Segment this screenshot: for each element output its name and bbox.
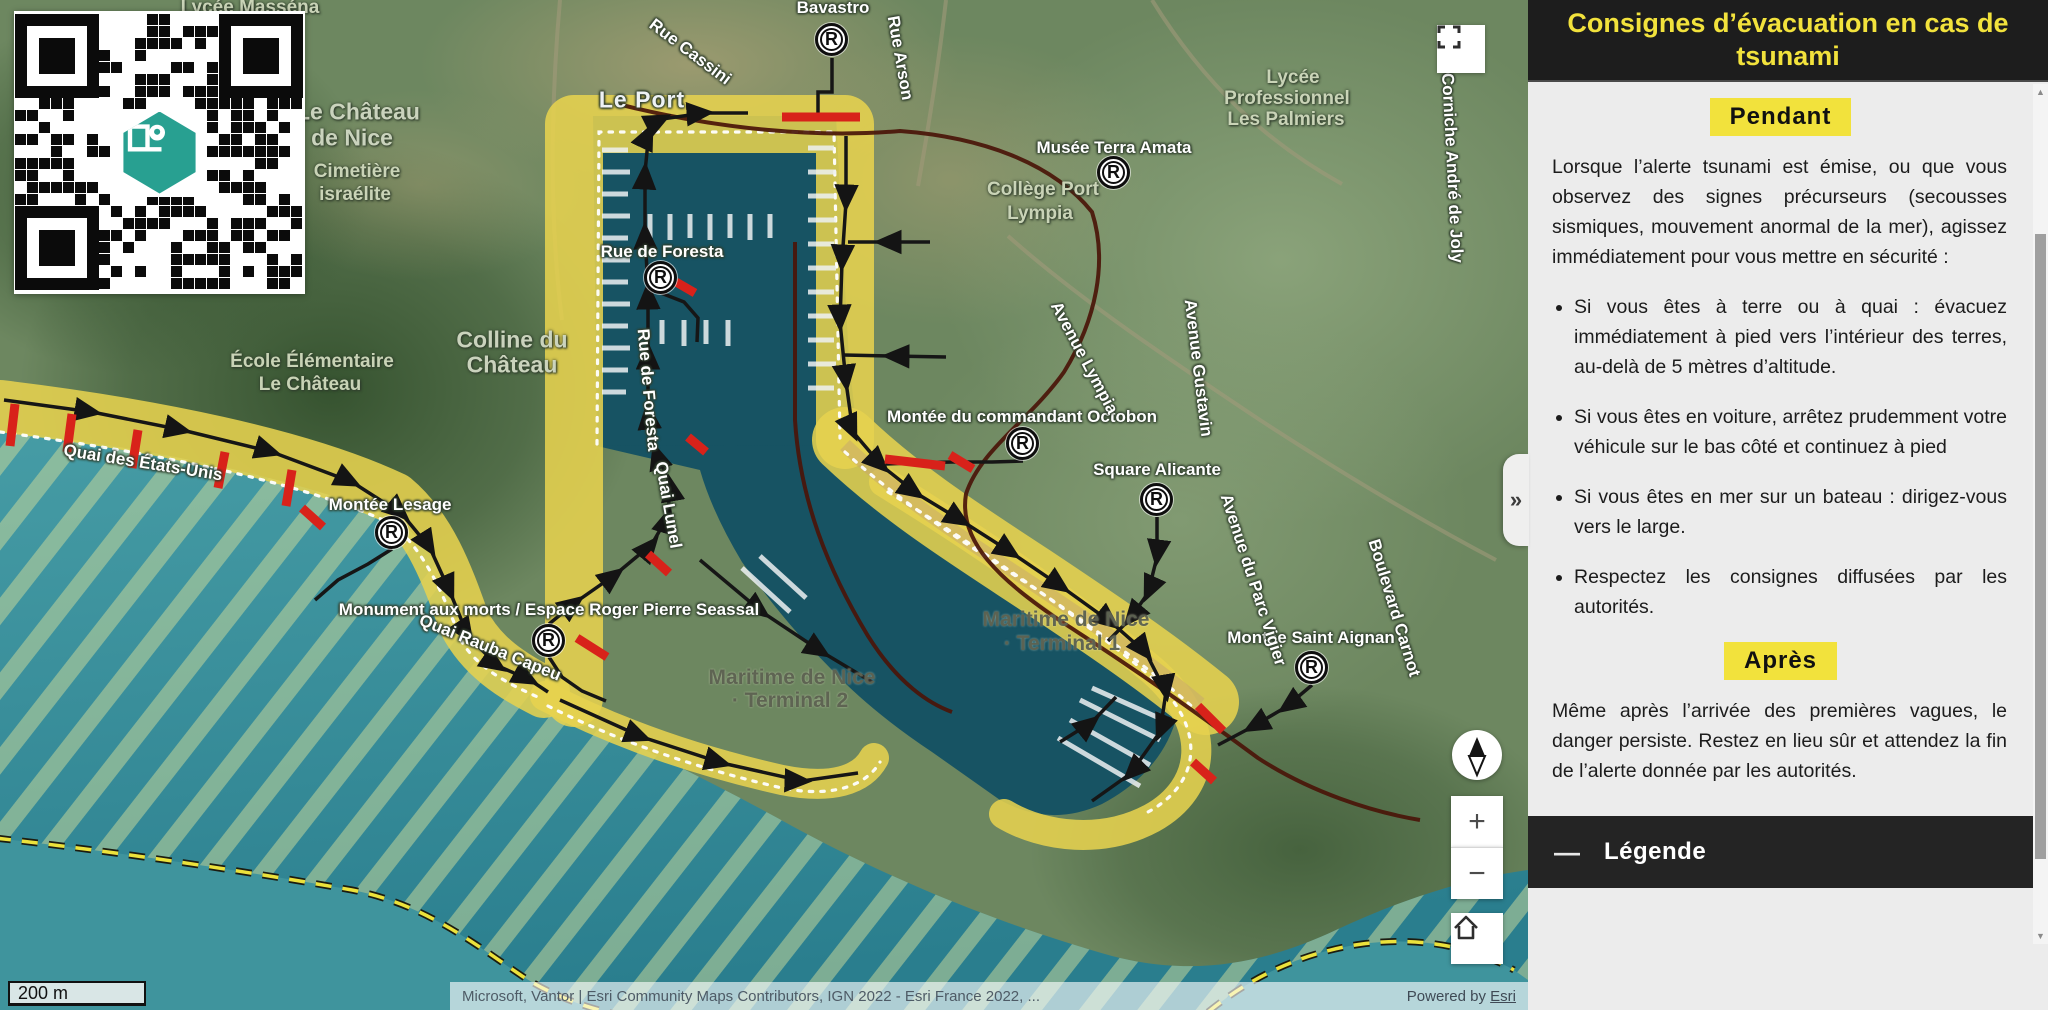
qr-center-logo — [116, 109, 204, 197]
instruction-bullet: Si vous êtes en mer sur un bateau : diri… — [1574, 482, 2007, 542]
zoom-in-button[interactable]: + — [1451, 796, 1503, 847]
attribution-bar: Microsoft, Vantor | Esri Community Maps … — [450, 982, 1528, 1010]
refuge-point-marker[interactable]: R — [532, 624, 565, 657]
refuge-point-marker[interactable]: R — [644, 261, 677, 294]
refuge-point-marker[interactable]: R — [1097, 156, 1130, 189]
instruction-bullet: Respectez les consignes diffusées par le… — [1574, 562, 2007, 622]
panel-content[interactable]: Pendant Lorsque l’alerte tsunami est émi… — [1528, 84, 2033, 1010]
refuge-point-marker[interactable]: R — [1140, 483, 1173, 516]
info-panel: Consignes d’évacuation en cas de tsunami… — [1528, 0, 2048, 1010]
pendant-intro-text: Lorsque l’alerte tsunami est émise, ou q… — [1552, 152, 2007, 272]
zoom-out-button[interactable]: − — [1451, 847, 1503, 899]
instruction-bullet: Si vous êtes à terre ou à quai : évacuez… — [1574, 292, 2007, 382]
instruction-bullet: Si vous êtes en voiture, arrêtez prudemm… — [1574, 402, 2007, 462]
scroll-down-arrow-icon[interactable]: ▼ — [2033, 928, 2048, 944]
home-icon — [1451, 913, 1481, 943]
tsunami-evacuation-map-app: { "sidebar": { "title": "Consignes d’éva… — [0, 0, 2048, 1010]
esri-link[interactable]: Esri — [1490, 988, 1516, 1005]
scroll-up-arrow-icon[interactable]: ▲ — [2033, 84, 2048, 100]
compass-button[interactable] — [1452, 730, 1502, 780]
apres-text: Même après l’arrivée des premières vague… — [1552, 696, 2007, 786]
powered-by: Powered by Esri — [1407, 988, 1516, 1005]
scrollbar-thumb[interactable] — [2035, 234, 2046, 859]
map-canvas[interactable]: Lycée MassénaBavastroRue CassiniRue Arso… — [0, 0, 1528, 1010]
panel-collapse-button[interactable]: » — [1503, 454, 1529, 546]
refuge-point-marker[interactable]: R — [1295, 651, 1328, 684]
legend-header[interactable]: — Légende — [1528, 816, 2033, 888]
panel-title: Consignes d’évacuation en cas de tsunami — [1528, 7, 2048, 73]
panel-header: Consignes d’évacuation en cas de tsunami — [1528, 0, 2048, 82]
section-badge-apres: Après — [1724, 642, 1837, 680]
refuge-point-marker[interactable]: R — [375, 516, 408, 549]
fullscreen-icon — [1437, 25, 1461, 49]
attribution-sources: Microsoft, Vantor | Esri Community Maps … — [462, 988, 1040, 1005]
instructions-list: Si vous êtes à terre ou à quai : évacuez… — [1552, 292, 2007, 622]
qr-code — [14, 11, 305, 294]
collapse-minus-icon: — — [1554, 837, 1580, 868]
legend-title: Légende — [1604, 838, 1706, 866]
compass-north-icon — [1452, 730, 1502, 780]
chevron-right-icon: » — [1510, 487, 1522, 513]
refuge-point-marker[interactable]: R — [815, 23, 848, 56]
home-extent-button[interactable] — [1451, 913, 1503, 964]
zoom-in-label: + — [1468, 805, 1486, 839]
map-app-logo-icon — [119, 112, 201, 194]
panel-scrollbar[interactable]: ▲ ▼ — [2033, 84, 2048, 944]
scale-label: 200 m — [18, 983, 68, 1004]
section-badge-pendant: Pendant — [1710, 98, 1852, 136]
scale-bar: 200 m — [8, 981, 146, 1006]
refuge-point-marker[interactable]: R — [1006, 427, 1039, 460]
fullscreen-button[interactable] — [1437, 25, 1485, 73]
zoom-out-label: − — [1468, 857, 1486, 891]
